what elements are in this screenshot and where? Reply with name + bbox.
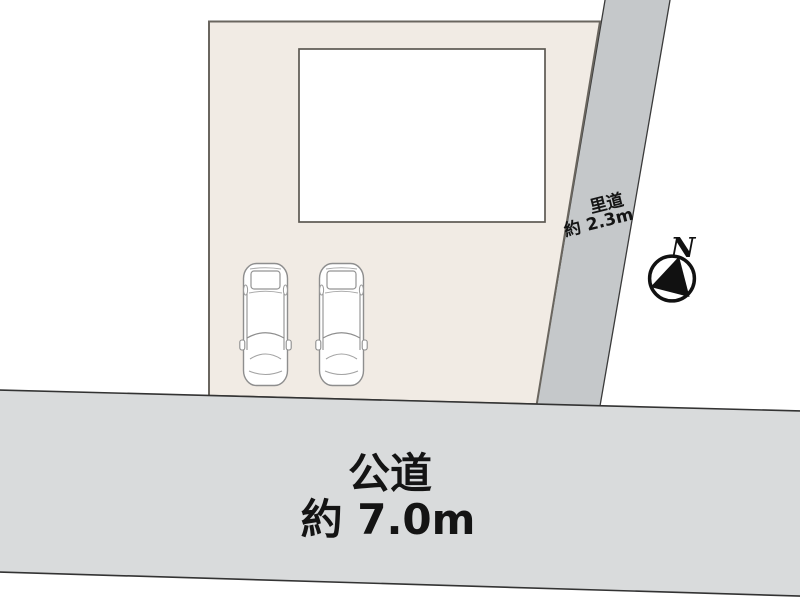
main-road-width-label: 約 7.0m: [301, 495, 476, 544]
car-1: [240, 264, 291, 386]
site-plan-figure: 里道 約 2.3m 公道 約 7.0m N: [0, 0, 800, 600]
main-road-name-label: 公道: [348, 449, 432, 498]
car-2: [316, 264, 367, 386]
site-plan-page: 里道 約 2.3m 公道 約 7.0m N: [0, 0, 800, 600]
building-footprint: [299, 49, 545, 222]
